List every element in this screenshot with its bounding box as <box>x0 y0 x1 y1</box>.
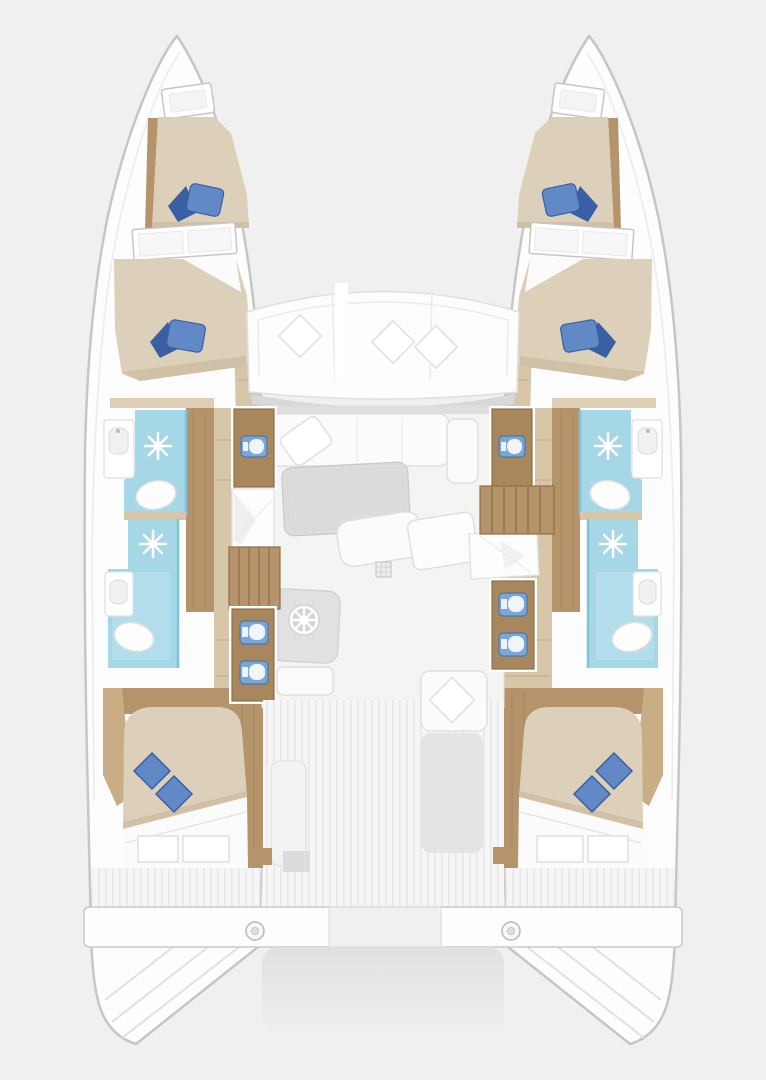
cabin-window <box>138 231 183 256</box>
vanity-cabinet-starboard <box>489 406 535 490</box>
washbasin <box>110 580 127 604</box>
sink-basin <box>249 664 265 680</box>
floorplan-canvas <box>0 0 766 1080</box>
shower-icon <box>145 433 171 459</box>
head-bulkhead <box>186 408 214 612</box>
catamaran-floorplan <box>0 0 766 1080</box>
winch-icon <box>246 922 264 940</box>
aft-cockpit <box>251 667 514 908</box>
galley-island <box>406 511 479 571</box>
swim-platform <box>262 947 504 1033</box>
beam-center-inset <box>329 907 441 947</box>
faucet-icon <box>243 442 248 451</box>
staircase-port <box>229 547 280 609</box>
vanity-cabinet-port <box>231 406 277 490</box>
counter-port <box>232 489 274 547</box>
sink-basin <box>507 439 522 454</box>
bow-lounge <box>247 283 519 416</box>
head-jamb <box>124 512 186 520</box>
counter-starboard <box>469 531 539 579</box>
shower-icon <box>140 531 166 557</box>
side-seat <box>447 419 478 483</box>
stern-window <box>183 836 229 862</box>
helm-wheel-icon <box>288 604 320 636</box>
floor-hatch <box>376 562 391 577</box>
sink-basin <box>508 596 524 612</box>
faucet-icon <box>116 429 120 433</box>
cockpit-seat-gray <box>421 733 483 853</box>
wood-post <box>251 848 272 865</box>
salon-front-shadow <box>262 406 504 414</box>
sink-basin <box>249 624 265 640</box>
faucet-icon <box>242 627 248 637</box>
sink-basin <box>508 636 524 652</box>
deck-box <box>283 851 310 872</box>
cockpit-table <box>277 667 333 695</box>
sink-basin <box>249 439 264 454</box>
guest-cabin <box>114 222 251 381</box>
winch-icon <box>502 922 520 940</box>
head-sill <box>110 398 214 408</box>
faucet-icon <box>501 599 507 609</box>
stern-window <box>138 836 178 862</box>
salon <box>262 406 504 708</box>
galley-cabinet-starboard <box>489 578 537 672</box>
staircase-starboard <box>480 486 554 534</box>
platform <box>262 947 504 1033</box>
cockpit-bench-port <box>271 761 306 866</box>
aft-beam <box>84 907 682 947</box>
faucet-icon <box>501 442 506 451</box>
walkway-gap <box>335 283 348 378</box>
faucet-icon <box>242 667 248 677</box>
cabin-window <box>187 228 231 253</box>
galley-cabinet-port <box>229 606 277 704</box>
faucet-icon <box>501 639 507 649</box>
pillow-front <box>166 319 206 353</box>
wood-post <box>493 847 514 864</box>
